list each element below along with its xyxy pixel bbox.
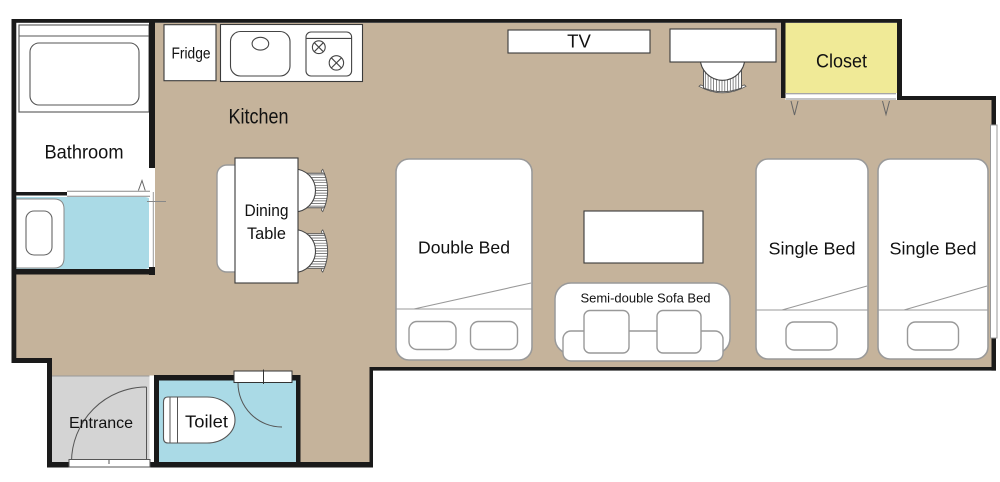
svg-text:Toilet: Toilet bbox=[185, 412, 228, 432]
svg-text:Semi-double Sofa Bed: Semi-double Sofa Bed bbox=[580, 291, 710, 306]
svg-text:TV: TV bbox=[567, 31, 591, 52]
svg-text:Table: Table bbox=[247, 224, 286, 243]
svg-text:Single Bed: Single Bed bbox=[890, 239, 977, 259]
svg-text:Bathroom: Bathroom bbox=[45, 142, 124, 164]
svg-text:Fridge: Fridge bbox=[172, 46, 211, 63]
svg-text:Single Bed: Single Bed bbox=[769, 239, 856, 259]
svg-text:Entrance: Entrance bbox=[69, 415, 133, 432]
svg-text:Closet: Closet bbox=[816, 52, 868, 73]
svg-text:Kitchen: Kitchen bbox=[229, 106, 289, 129]
svg-text:Dining: Dining bbox=[245, 201, 289, 220]
svg-text:Double Bed: Double Bed bbox=[418, 238, 510, 258]
